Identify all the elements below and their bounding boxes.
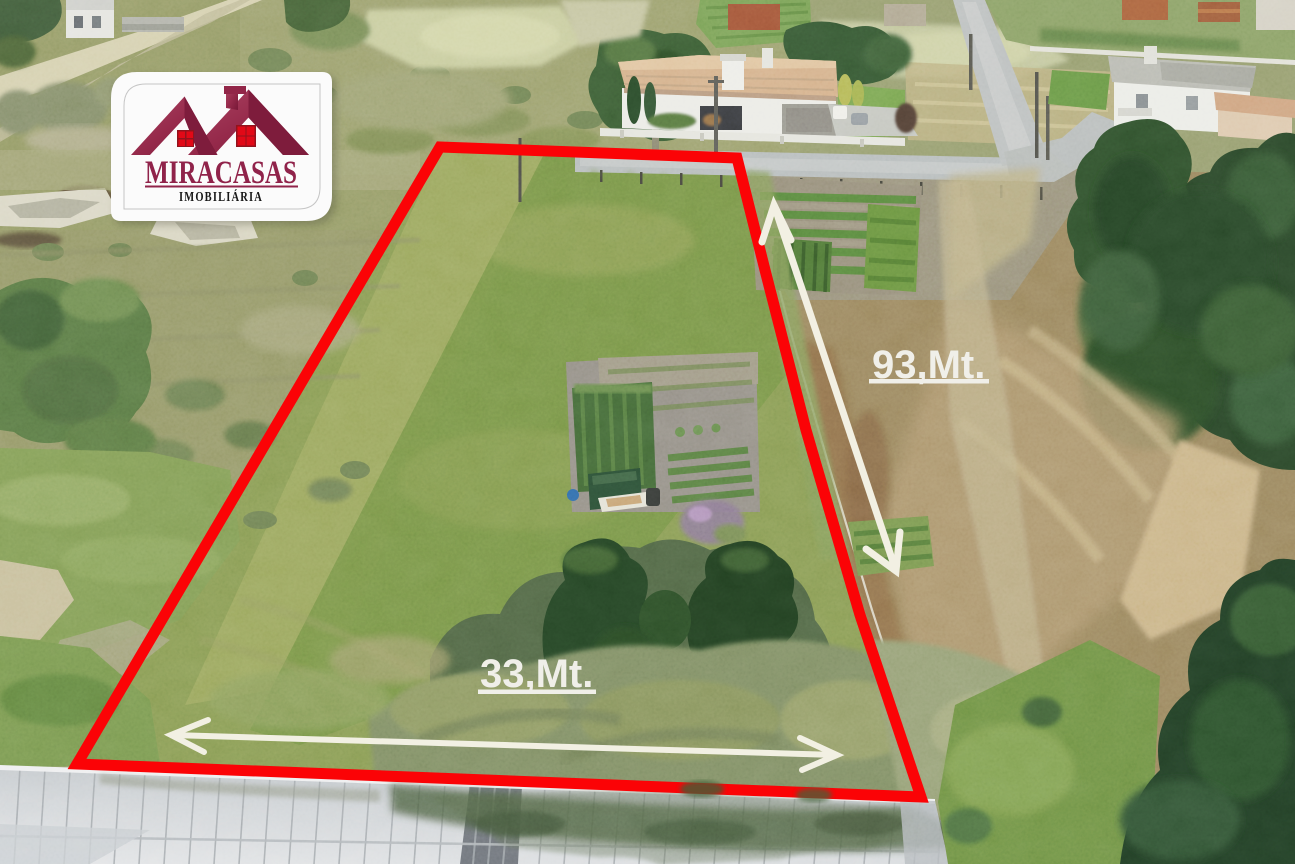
svg-text:IMOBILIÁRIA: IMOBILIÁRIA — [179, 189, 263, 204]
svg-text:33,Mt.: 33,Mt. — [480, 652, 593, 696]
